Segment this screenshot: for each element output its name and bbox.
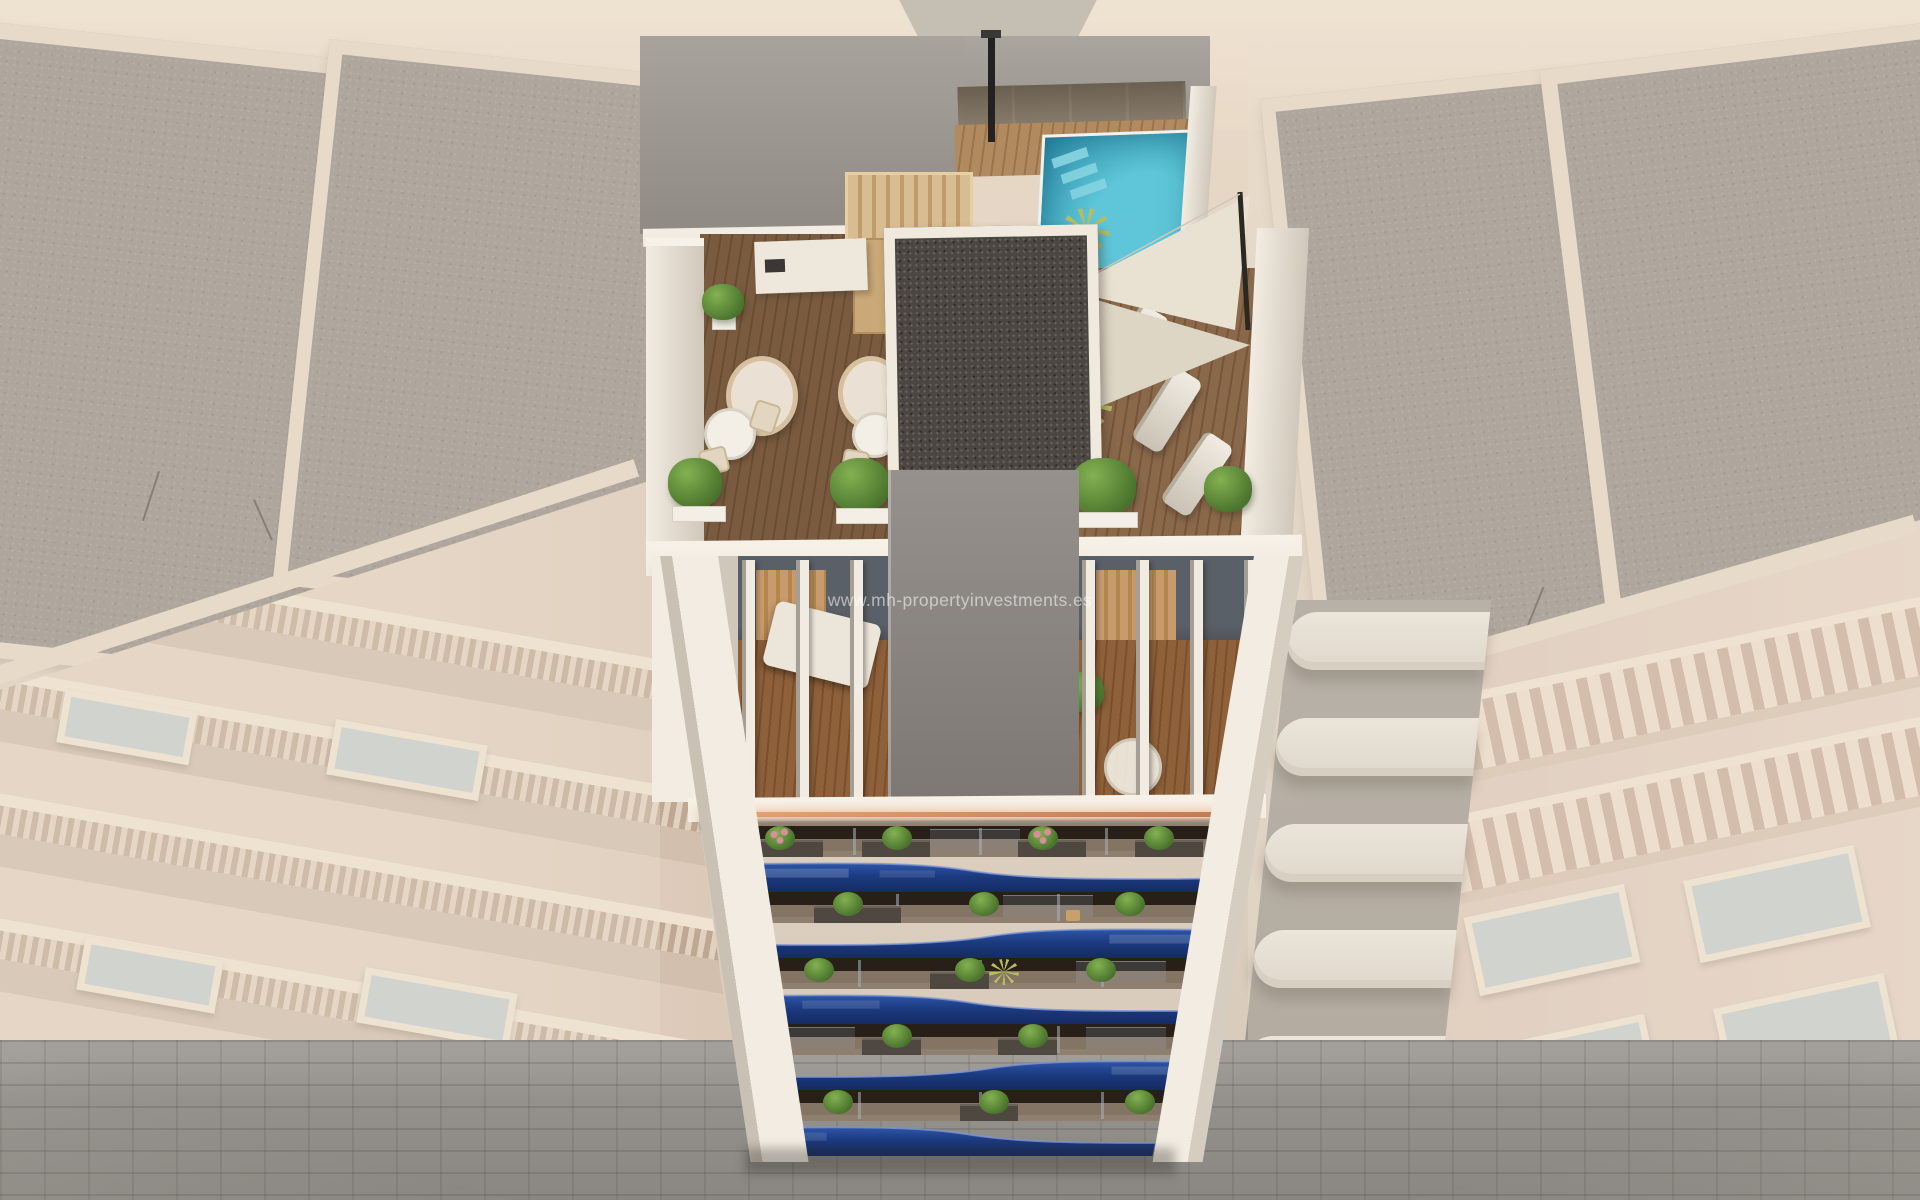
balcony-terrace bbox=[736, 958, 1222, 989]
balcony-plant bbox=[823, 1090, 853, 1114]
led-strip bbox=[700, 812, 1252, 817]
balcony-terrace bbox=[736, 892, 1222, 923]
flowering-plant bbox=[765, 826, 795, 850]
balcony-plant bbox=[833, 892, 863, 916]
balcony-terrace bbox=[736, 1090, 1222, 1121]
glass-divider bbox=[1086, 1027, 1166, 1049]
roof-edge-plant bbox=[668, 458, 722, 508]
wavy-navy-parapet bbox=[736, 922, 1222, 958]
balcony-terrace bbox=[736, 826, 1222, 857]
potted-plant bbox=[702, 284, 744, 320]
watermark-text: www.mh-propertyinvestments.es bbox=[828, 590, 1092, 611]
glass-divider bbox=[930, 829, 1020, 851]
balcony-level bbox=[736, 1024, 1222, 1090]
balcony-terrace bbox=[736, 1024, 1222, 1055]
roof-edge-plant bbox=[1070, 458, 1136, 516]
balcony-plant bbox=[882, 826, 912, 850]
balcony-level bbox=[736, 826, 1222, 892]
planter-box bbox=[672, 506, 726, 522]
penthouse-terrace-table bbox=[1104, 738, 1162, 796]
penthouse-fin bbox=[796, 560, 809, 798]
flowering-plant bbox=[1028, 826, 1058, 850]
balcony-divider bbox=[1105, 828, 1108, 855]
outdoor-kitchen-counter bbox=[754, 238, 868, 294]
balcony-plant bbox=[882, 1024, 912, 1048]
pool-steps bbox=[1051, 147, 1088, 169]
balcony-plant bbox=[979, 1090, 1009, 1114]
balcony-divider bbox=[1057, 894, 1060, 921]
balcony-divider bbox=[1101, 1092, 1104, 1119]
penthouse-fin bbox=[1190, 560, 1203, 798]
wavy-navy-parapet bbox=[736, 988, 1222, 1024]
cooktop bbox=[765, 259, 785, 273]
penthouse-floor-slab bbox=[688, 794, 1266, 822]
balcony-plant bbox=[1115, 892, 1145, 916]
balcony-divider bbox=[858, 960, 861, 987]
balcony-plant bbox=[1125, 1090, 1155, 1114]
planter-box bbox=[836, 508, 894, 524]
balcony-plant bbox=[969, 892, 999, 916]
balcony-divider bbox=[853, 828, 856, 855]
palm-plant bbox=[989, 959, 1019, 985]
curved-balcony-slab bbox=[1273, 718, 1479, 776]
wavy-navy-parapet bbox=[736, 1054, 1222, 1090]
balcony-level bbox=[736, 1090, 1222, 1156]
shower-pole bbox=[988, 30, 995, 142]
balcony-divider bbox=[979, 828, 982, 855]
curved-balcony-slab bbox=[1284, 612, 1490, 670]
core-block-top bbox=[884, 224, 1103, 498]
wicker-basket bbox=[1066, 910, 1080, 921]
balcony-divider bbox=[858, 1092, 861, 1119]
shower-head bbox=[981, 30, 1001, 38]
balcony-stack bbox=[736, 826, 1222, 1158]
balcony-plant bbox=[804, 958, 834, 982]
balcony-plant bbox=[1018, 1024, 1048, 1048]
roof-edge-plant bbox=[1204, 466, 1252, 512]
roof-edge-plant bbox=[830, 458, 890, 512]
balcony-level bbox=[736, 958, 1222, 1024]
building-street-shadow bbox=[745, 1148, 1175, 1174]
window bbox=[1463, 884, 1640, 996]
balcony-plant bbox=[1086, 958, 1116, 982]
balcony-plant bbox=[955, 958, 985, 982]
planter-box bbox=[1076, 512, 1138, 528]
balcony-level bbox=[736, 892, 1222, 958]
roof-parapet-left bbox=[646, 238, 704, 576]
wavy-navy-parapet bbox=[736, 856, 1222, 892]
balcony-divider bbox=[1057, 1026, 1060, 1053]
curved-balcony-slab bbox=[1251, 930, 1457, 988]
aerial-render-scene: www.mh-propertyinvestments.es bbox=[0, 0, 1920, 1200]
curved-balcony-slab bbox=[1262, 824, 1468, 882]
penthouse-fin bbox=[1136, 560, 1149, 798]
window bbox=[1683, 845, 1871, 963]
core-block-face bbox=[888, 470, 1079, 802]
